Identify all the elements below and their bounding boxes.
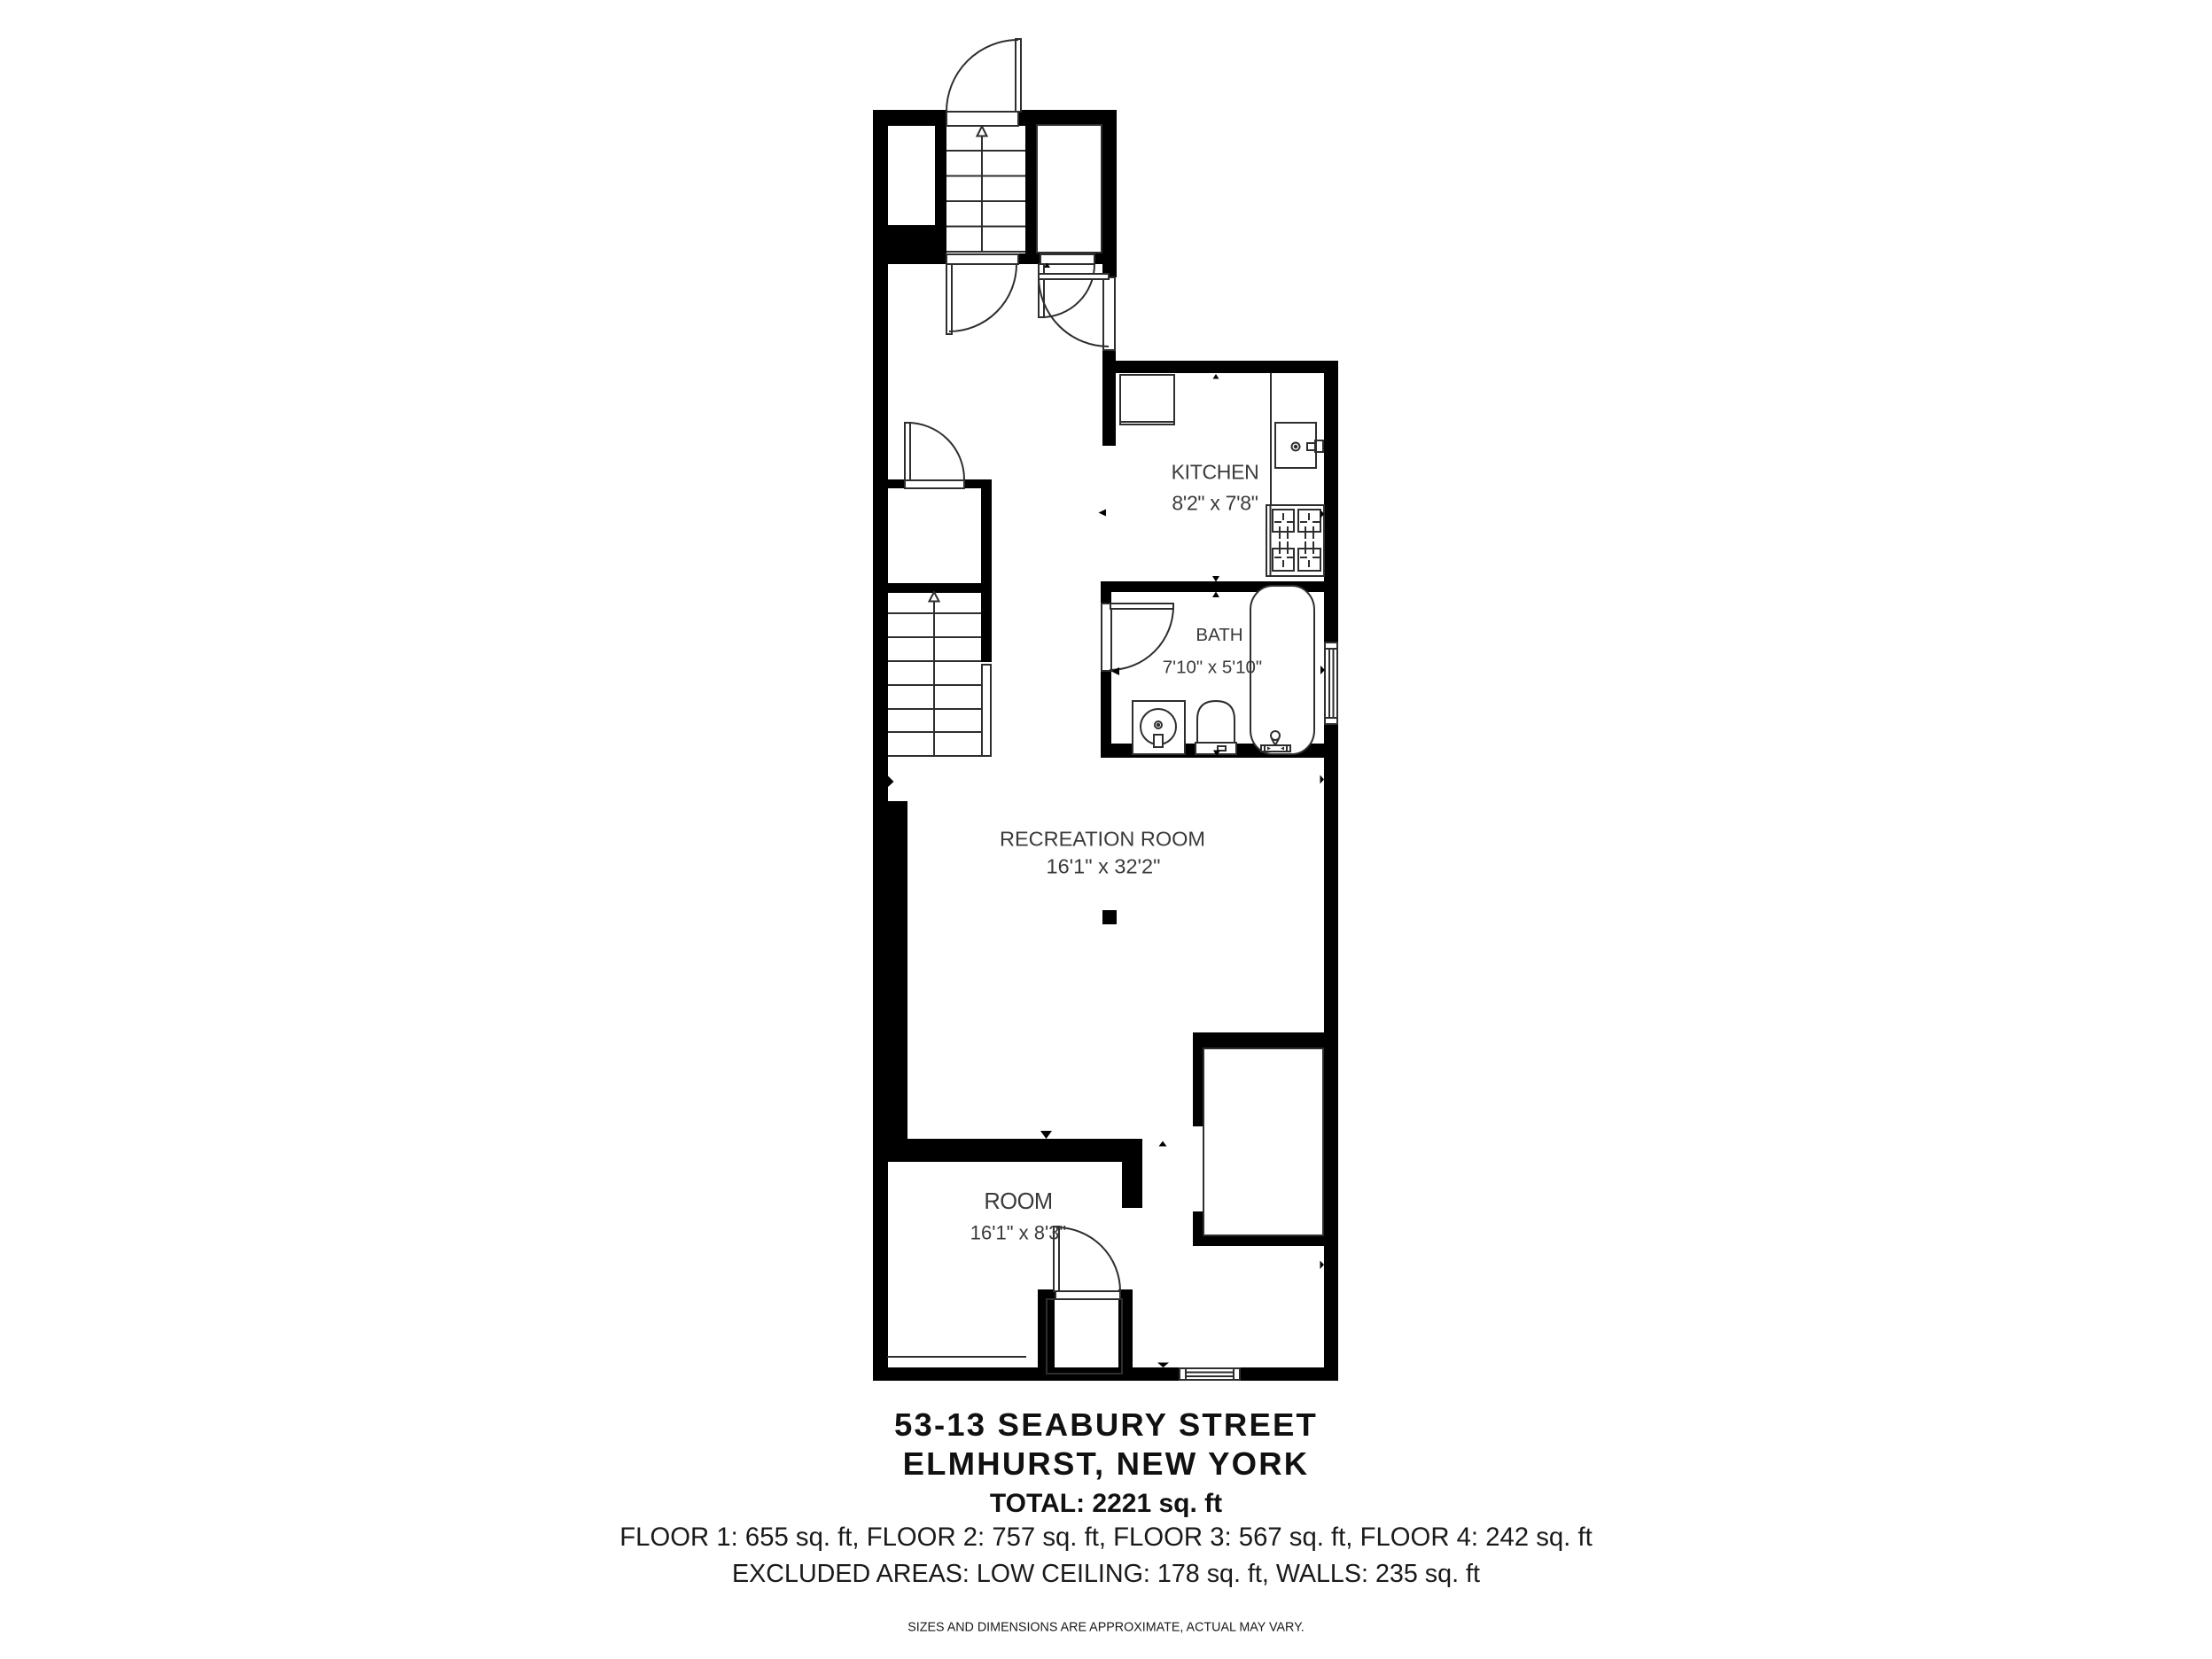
- svg-text:EXCLUDED AREAS: LOW CEILING: 1: EXCLUDED AREAS: LOW CEILING: 178 sq. ft,…: [732, 1560, 1480, 1588]
- svg-text:SIZES AND DIMENSIONS ARE APPRO: SIZES AND DIMENSIONS ARE APPROXIMATE, AC…: [907, 1621, 1305, 1635]
- svg-text:RECREATION ROOM: RECREATION ROOM: [1000, 828, 1205, 851]
- svg-text:KITCHEN: KITCHEN: [1172, 461, 1259, 484]
- svg-text:ELMHURST, NEW YORK: ELMHURST, NEW YORK: [903, 1445, 1310, 1482]
- svg-text:TOTAL: 2221 sq. ft: TOTAL: 2221 sq. ft: [990, 1489, 1222, 1518]
- svg-text:16'1" x 32'2": 16'1" x 32'2": [1047, 855, 1161, 878]
- svg-text:FLOOR 1: 655 sq. ft, FLOOR 2:: FLOOR 1: 655 sq. ft, FLOOR 2: 757 sq. ft…: [619, 1523, 1592, 1552]
- svg-text:BATH: BATH: [1196, 625, 1242, 645]
- svg-text:8'2" x 7'8": 8'2" x 7'8": [1172, 492, 1258, 515]
- svg-text:ROOM: ROOM: [984, 1189, 1052, 1214]
- svg-text:16'1" x 8'3": 16'1" x 8'3": [970, 1222, 1066, 1244]
- svg-text:53-13 SEABURY STREET: 53-13 SEABURY STREET: [894, 1406, 1318, 1443]
- svg-text:7'10" x 5'10": 7'10" x 5'10": [1163, 658, 1262, 678]
